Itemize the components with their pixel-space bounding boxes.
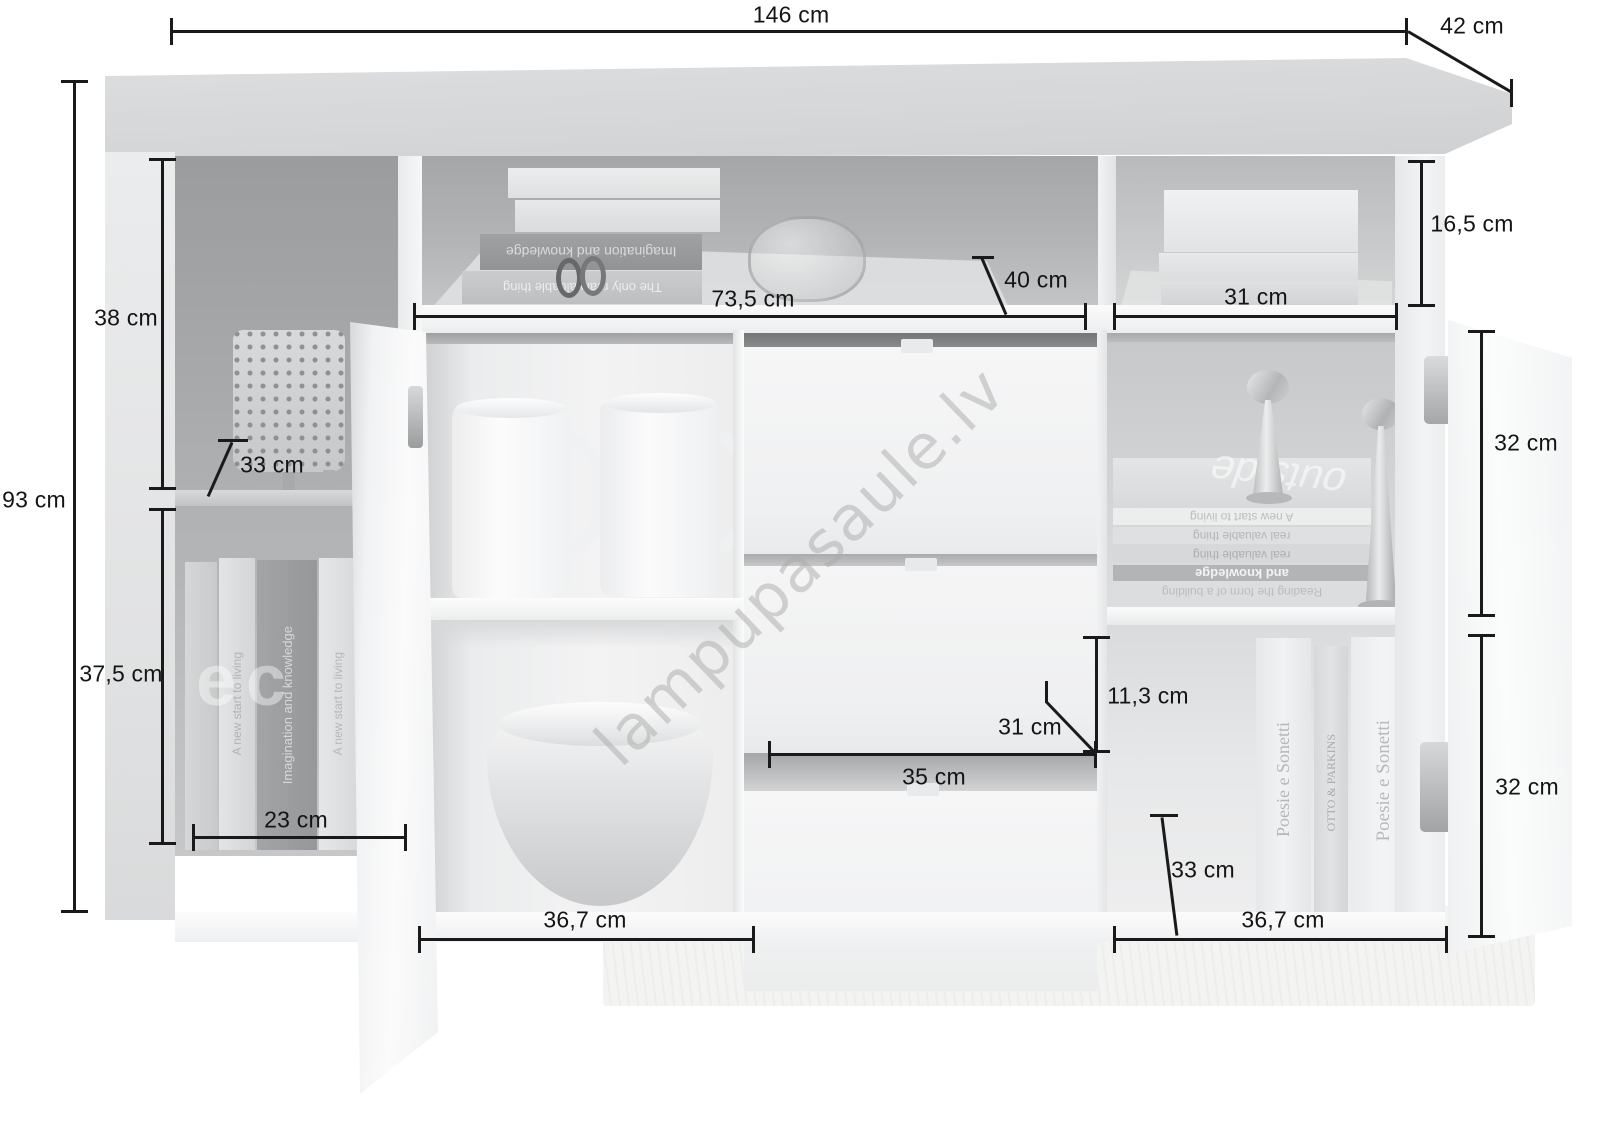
- dim-bottom-right-width-line: [1113, 938, 1448, 941]
- book-horizontal: Reading the form of a building: [1113, 583, 1371, 600]
- drawer-handle: [901, 339, 933, 353]
- glasses-decor: [580, 256, 606, 296]
- dim-total-height-label: 93 cm: [2, 487, 66, 514]
- dim-bottom-left-width-label: 36,7 cm: [543, 907, 626, 934]
- book-spine-text: real valuable thing: [1193, 529, 1290, 543]
- dim-lower-right-line: [1480, 634, 1483, 938]
- dim-lower-left-label: 37,5 cm: [79, 661, 162, 688]
- dim-right-shelf-depth-tick: [1150, 814, 1178, 817]
- book-cover-overlay-text: ec: [196, 640, 366, 716]
- dim-lower-right-label: 32 cm: [1495, 774, 1559, 801]
- dim-upper-left-line: [161, 158, 164, 490]
- dim-total-depth-label: 42 cm: [1440, 13, 1504, 40]
- dim-middle-width-line: [413, 315, 1087, 318]
- jug: [600, 397, 720, 597]
- top-row-shelf-band: [420, 305, 1445, 333]
- niche-divider: [1098, 156, 1116, 316]
- door-handle: [408, 386, 423, 448]
- dimension-diagram: A new start to living Imagination and kn…: [0, 0, 1600, 1134]
- dim-drawer-height-label: 11,3 cm: [1107, 683, 1189, 710]
- book-horizontal: [515, 200, 720, 232]
- book-horizontal: [1164, 190, 1358, 252]
- dim-bottom-left-width-line: [418, 938, 755, 941]
- dim-upper-right-line: [1480, 330, 1483, 617]
- book-vertical: OTTO & PARKINS: [1314, 646, 1348, 920]
- dim-middle-shelf-depth-label: 40 cm: [1004, 267, 1068, 294]
- book-spine-text: OTTO & PARKINS: [1324, 734, 1339, 831]
- book-horizontal: A new start to living: [1113, 508, 1371, 525]
- book-spine-text: A new start to living: [1190, 510, 1293, 524]
- book-spine-text: Reading the form of a building: [1162, 585, 1322, 599]
- book-horizontal: [1159, 253, 1358, 281]
- dim-left-interior-width-line: [192, 836, 407, 839]
- glasses-decor: [556, 258, 582, 298]
- dim-top-shelf-height-label: 16,5 cm: [1430, 211, 1513, 238]
- dim-middle-width-label: 73,5 cm: [711, 286, 794, 313]
- dim-drawer-height-line: [1095, 636, 1098, 753]
- dim-right-top-width-line: [1113, 315, 1398, 318]
- dim-total-width-label: 146 cm: [753, 2, 830, 29]
- right-compartment-shelf: [1107, 607, 1421, 625]
- dim-left-interior-width-label: 23 cm: [264, 807, 328, 834]
- book-vertical: Poesie e Sonetti: [1256, 638, 1311, 920]
- dim-total-depth-tick: [1510, 79, 1513, 107]
- book-spine-text: Poesie e Sonetti: [1273, 722, 1294, 837]
- cabinet-top-slab: [105, 58, 1512, 160]
- candlestick-head: [1247, 370, 1289, 404]
- dim-drawer-width-line: [768, 753, 1097, 756]
- dim-upper-right-label: 32 cm: [1494, 430, 1558, 457]
- partition-right-of-drawers: [1097, 330, 1107, 920]
- dim-top-shelf-height-line: [1420, 160, 1423, 307]
- dim-right-top-width-label: 31 cm: [1224, 284, 1288, 311]
- dim-upper-left-label: 38 cm: [94, 305, 158, 332]
- drawer-bottom: [744, 791, 1097, 991]
- dim-drawer-inner-label: 31 cm: [998, 714, 1062, 741]
- dim-total-height-line: [73, 80, 76, 913]
- dim-total-width-line: [170, 30, 1408, 33]
- book-horizontal-dark: and knowledge: [1113, 565, 1371, 581]
- drawer-handle: [905, 558, 937, 571]
- candlestick-base: [1246, 492, 1292, 504]
- book-spine-text: and knowledge: [1195, 566, 1289, 581]
- dim-bottom-right-width-label: 36,7 cm: [1241, 907, 1324, 934]
- dim-left-shelf-depth-label: 33 cm: [240, 452, 304, 479]
- book-horizontal: real valuable thing: [1113, 546, 1371, 563]
- left-door-open: [350, 318, 440, 1094]
- book-spine-text: real valuable thing: [1193, 548, 1290, 562]
- dim-right-shelf-depth-label: 33 cm: [1171, 857, 1235, 884]
- book-horizontal: real valuable thing: [1113, 527, 1371, 544]
- book-horizontal: [508, 168, 720, 198]
- pot-leg: [323, 470, 335, 492]
- book-spine-text: Poesie e Sonetti: [1373, 720, 1395, 841]
- jug-mouth: [456, 398, 566, 418]
- left-side-panel: [105, 152, 175, 920]
- dim-left-shelf-depth-tick: [218, 439, 248, 442]
- jug: [452, 402, 570, 600]
- dim-drawer-width-label: 35 cm: [902, 764, 966, 791]
- jug-mouth: [604, 393, 716, 413]
- right-door-open: [1448, 320, 1574, 956]
